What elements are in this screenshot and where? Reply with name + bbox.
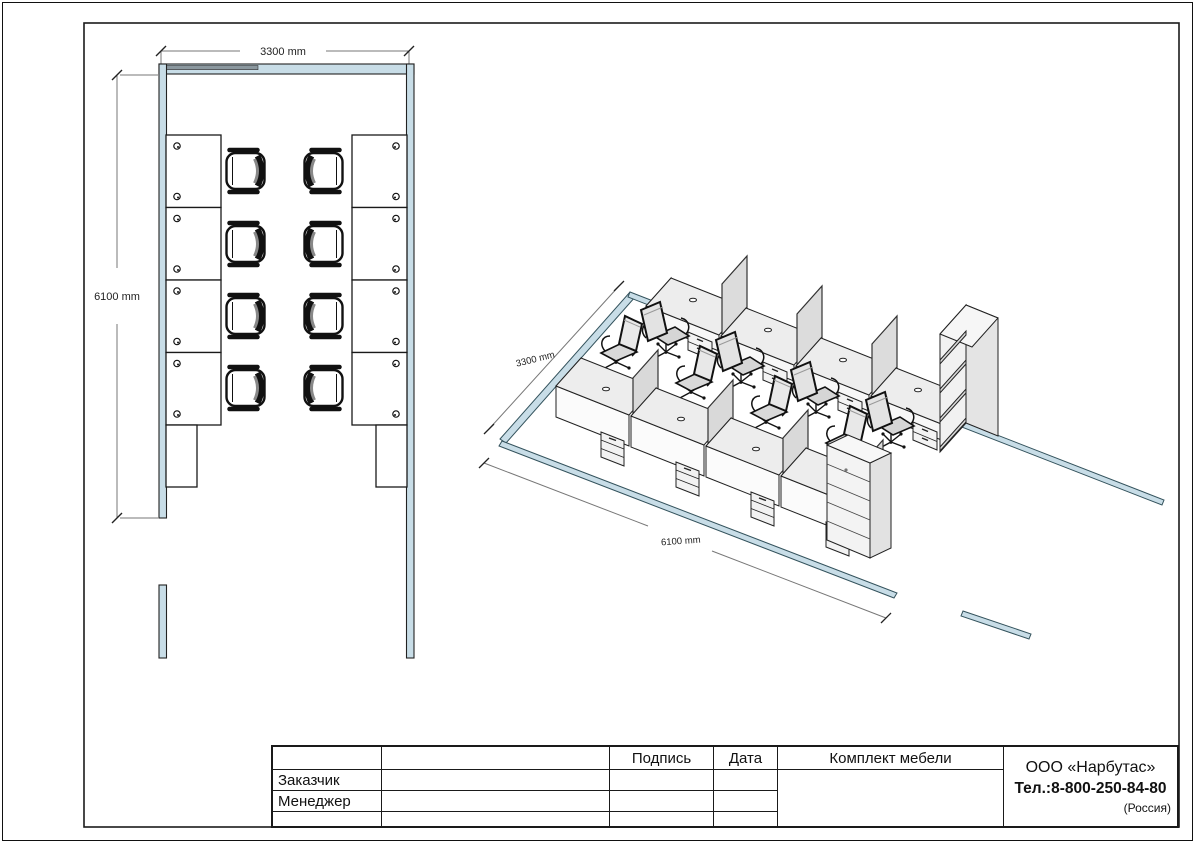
signature-column-header: Подпись	[610, 747, 714, 770]
iso-chair	[751, 376, 792, 431]
company-phone: Тел.:8-800-250-84-80	[1014, 779, 1166, 800]
customer-label: Заказчик	[273, 770, 382, 791]
plan-window-strip	[166, 66, 258, 70]
title-block: Подпись Дата Комплект мебели ООО «Нарбут…	[271, 745, 1179, 828]
plan-chair	[305, 223, 343, 265]
plan-pedestal-right	[376, 425, 407, 487]
company-name: ООО «Нарбутас»	[1026, 757, 1156, 779]
header-empty-cell-2	[382, 747, 610, 770]
customer-value-cell	[382, 770, 610, 791]
extra-row-label-cell	[273, 812, 382, 826]
plan-pedestal-left	[166, 425, 197, 487]
manager-label: Менеджер	[273, 791, 382, 812]
company-info: ООО «Нарбутас» Тел.:8-800-250-84-80 (Рос…	[1004, 747, 1177, 826]
company-country: (Россия)	[1124, 800, 1171, 816]
plan-wall-stub	[159, 585, 167, 658]
manager-value-cell	[382, 791, 610, 812]
drawing-page: 3300 mm 6100 mm	[0, 0, 1200, 850]
plan-depth-label: 6100 mm	[94, 291, 140, 303]
plan-view: 3300 mm 6100 mm	[94, 46, 414, 658]
plan-chair	[227, 223, 265, 265]
header-empty-cell-1	[273, 747, 382, 770]
plan-chair	[227, 150, 265, 192]
plan-chair	[305, 150, 343, 192]
plan-desks-right	[352, 135, 407, 487]
plan-chair	[227, 367, 265, 409]
date-column-header: Дата	[714, 747, 778, 770]
iso-wall-stub	[961, 611, 1031, 639]
extra-row-date-cell	[714, 812, 778, 826]
iso-cabinet	[827, 435, 891, 558]
plan-chair	[305, 295, 343, 337]
customer-signature-cell	[610, 770, 714, 791]
iso-depth-label: 6100 mm	[661, 535, 701, 549]
extra-row-signature-cell	[610, 812, 714, 826]
plan-width-label: 3300 mm	[260, 46, 306, 58]
project-title-body-cell	[778, 770, 1004, 826]
extra-row-value-cell	[382, 812, 610, 826]
manager-signature-cell	[610, 791, 714, 812]
plan-chair	[227, 295, 265, 337]
plan-desks-left	[166, 135, 221, 487]
iso-view: 3300 mm 6100 mm	[479, 256, 1164, 639]
furniture-layout-drawing: 3300 mm 6100 mm	[0, 0, 1200, 850]
manager-date-cell	[714, 791, 778, 812]
customer-date-cell	[714, 770, 778, 791]
iso-chair	[676, 346, 717, 401]
plan-chair	[305, 367, 343, 409]
project-title: Комплект мебели	[778, 747, 1004, 770]
iso-width-label: 3300 mm	[515, 349, 556, 369]
